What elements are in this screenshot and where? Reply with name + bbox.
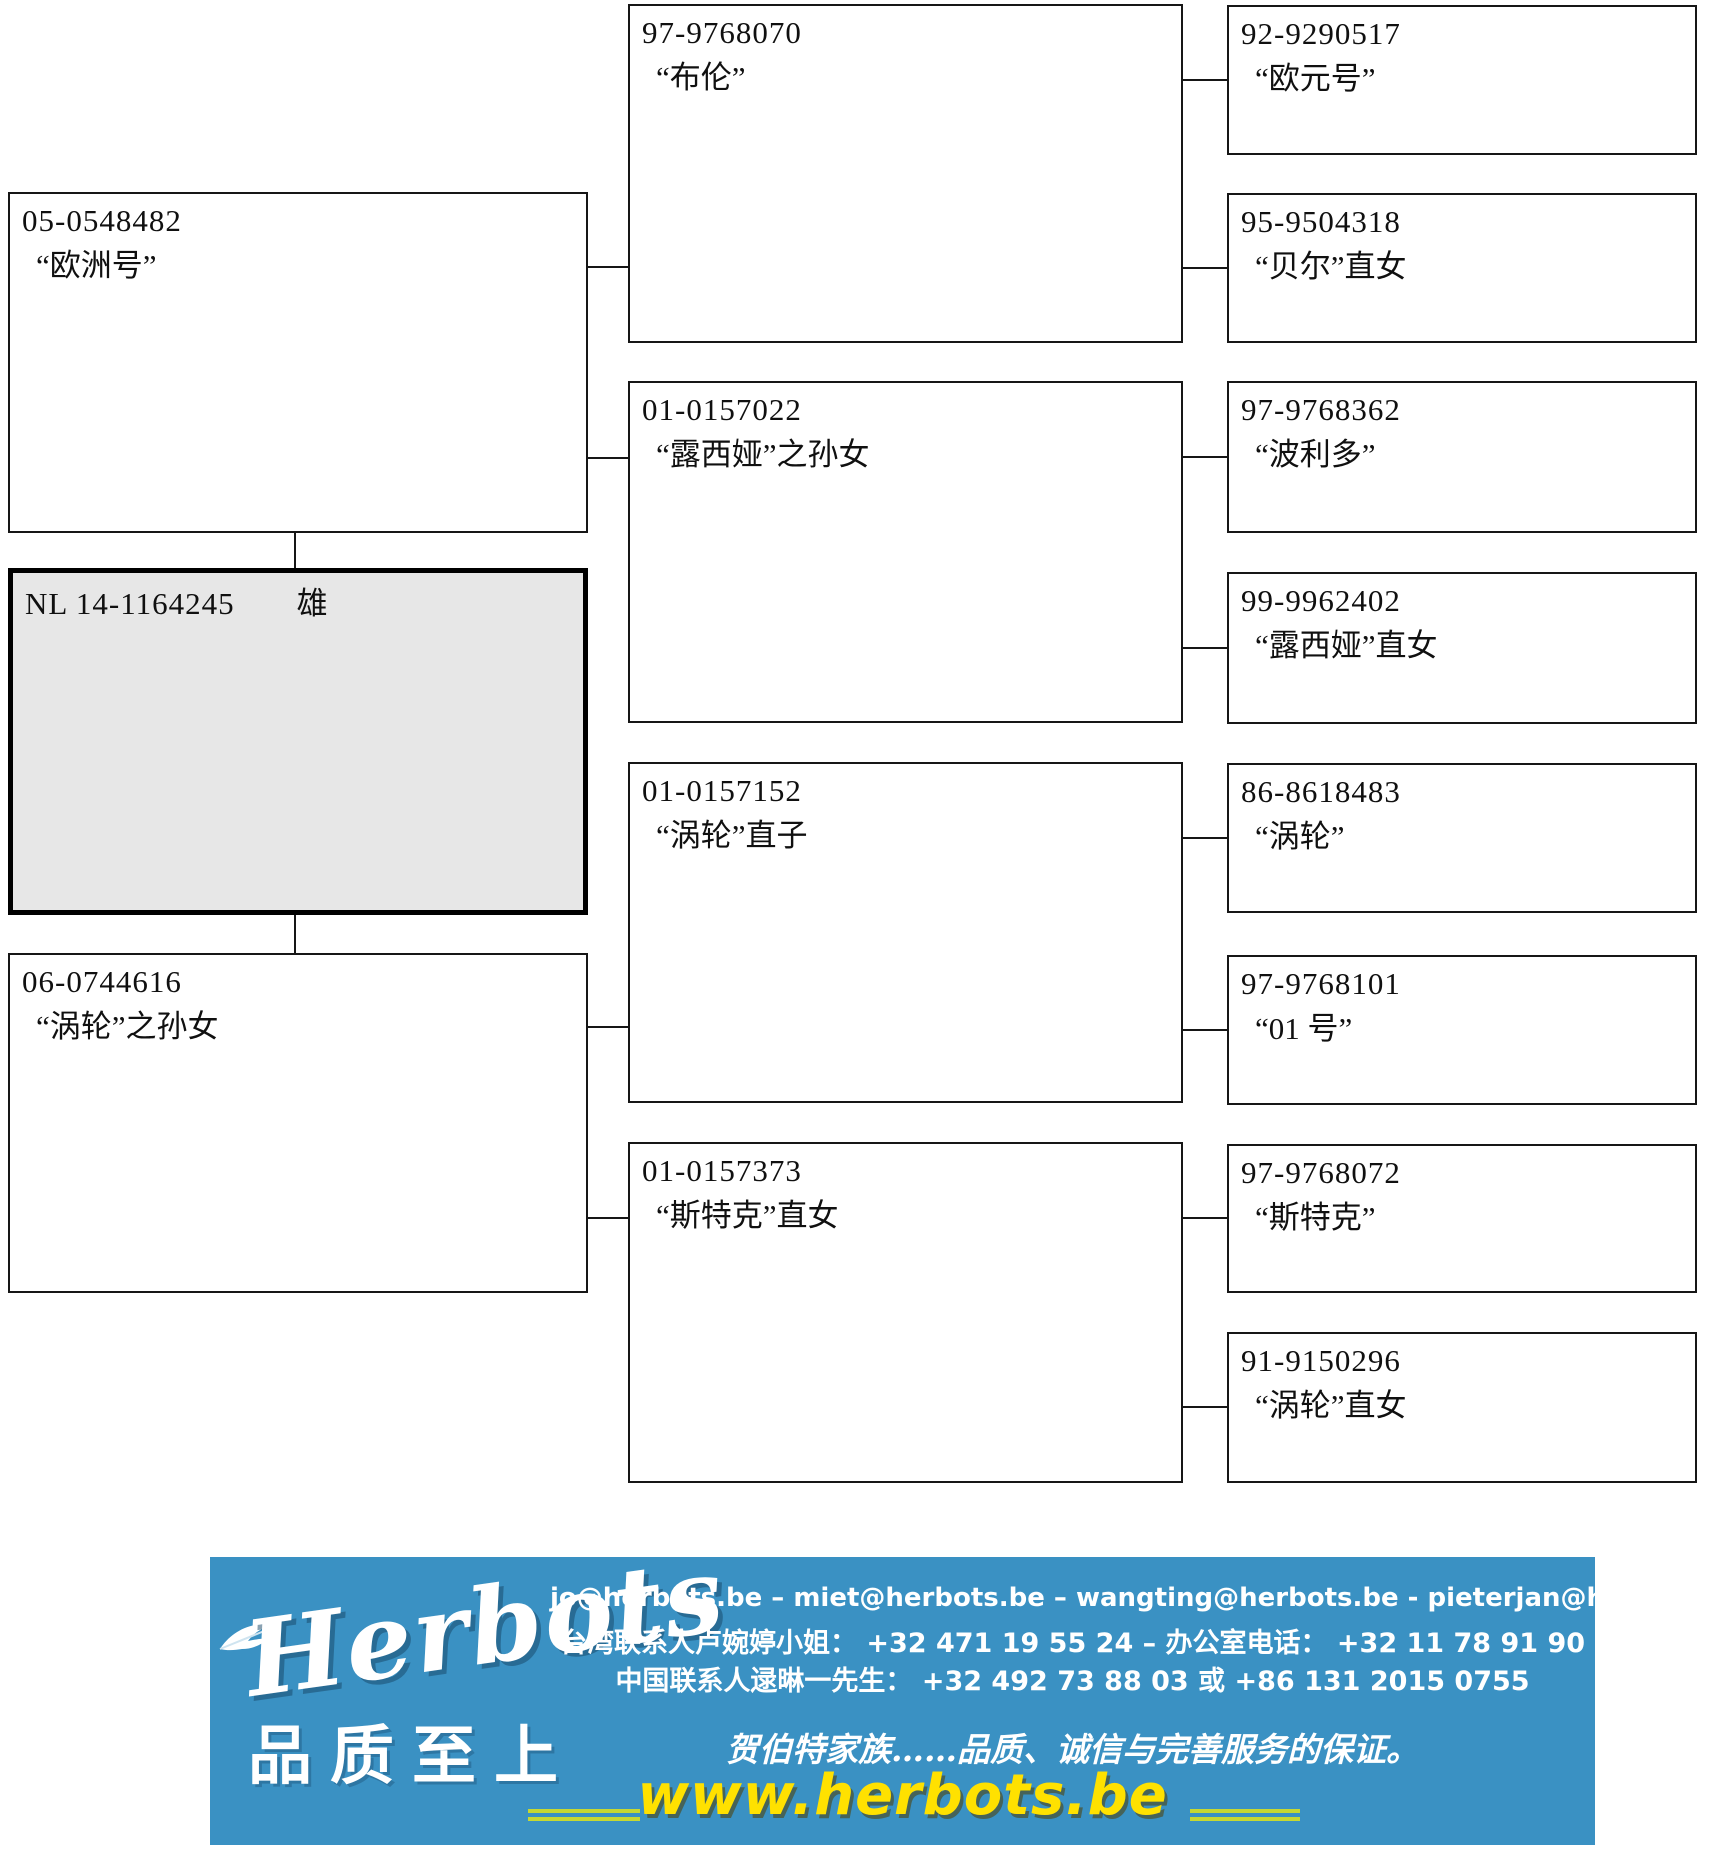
pedigree-box-ggparent-3: 97-9768362 “波利多” [1227,381,1697,533]
ring-number: 01-0157152 [642,769,1169,813]
pedigree-box-ggparent-6: 97-9768101 “01 号” [1227,955,1697,1105]
pedigree-box-ggparent-5: 86-8618483 “涡轮” [1227,763,1697,913]
pedigree-box-ggparent-7: 97-9768072 “斯特克” [1227,1144,1697,1293]
ring-number: 97-9768070 [642,11,1169,55]
ring-number: 86-8618483 [1241,770,1683,814]
ring-number: 01-0157373 [642,1149,1169,1193]
connector-line [1183,837,1227,839]
pigeon-name: “波利多” [1241,432,1683,478]
ring-number: 97-9768101 [1241,962,1683,1006]
pedigree-box-ggparent-8: 91-9150296 “涡轮”直女 [1227,1332,1697,1483]
connector-line [1183,456,1227,458]
connector-line [588,1217,628,1219]
connector-line [1183,647,1227,649]
connector-line [588,457,628,459]
connector-line [1183,1406,1227,1408]
contact-china: 中国联系人逯晽一先生： +32 492 73 88 03 或 +86 131 2… [550,1659,1595,1698]
pedigree-box-ggparent-1: 92-9290517 “欧元号” [1227,5,1697,155]
pedigree-box-ggparent-4: 99-9962402 “露西娅”直女 [1227,572,1697,724]
pigeon-name: “欧元号” [1241,56,1683,102]
pigeon-name: “布伦” [642,55,1169,101]
pigeon-name: “涡轮”之孙女 [22,1004,574,1050]
ring-number: 99-9962402 [1241,579,1683,623]
connector-line [1183,267,1227,269]
pedigree-box-grandparent-4: 01-0157373 “斯特克”直女 [628,1142,1183,1483]
connector-line [1183,79,1227,81]
pigeon-name: “露西娅”之孙女 [642,432,1169,478]
ring-number: 92-9290517 [1241,12,1683,56]
pigeon-name: “01 号” [1241,1006,1683,1052]
connector-line [588,266,628,268]
pigeon-name: “欧洲号” [22,243,574,289]
ring-number: 91-9150296 [1241,1339,1683,1383]
pigeon-name: “涡轮”直子 [642,813,1169,859]
pedigree-chart: 05-0548482 “欧洲号” NL 14-1164245雄 06-07446… [0,0,1720,1851]
sex-label: 雄 [297,578,328,623]
connector-line [1183,1217,1227,1219]
contact-taiwan: 台湾联系人卢婉婷小姐： +32 471 19 55 24 – 办公室电话： +3… [550,1621,1595,1660]
pedigree-box-grandparent-3: 01-0157152 “涡轮”直子 [628,762,1183,1103]
ring-number: 06-0744616 [22,960,574,1004]
connector-line [294,915,296,953]
pigeon-name: “贝尔”直女 [1241,244,1683,290]
ring-number: 97-9768362 [1241,388,1683,432]
connector-line [1183,1029,1227,1031]
pigeon-name: “斯特克”直女 [642,1193,1169,1239]
pigeon-name: “涡轮” [1241,814,1683,860]
decorative-double-line [1190,1809,1300,1821]
ring-number: 95-9504318 [1241,200,1683,244]
pigeon-name: “露西娅”直女 [1241,623,1683,669]
pigeon-name: “斯特克” [1241,1195,1683,1241]
connector-line [294,533,296,568]
pedigree-box-grandparent-2: 01-0157022 “露西娅”之孙女 [628,381,1183,723]
pedigree-box-subject: NL 14-1164245雄 [8,568,588,915]
connector-line [588,1026,628,1028]
ring-number: 97-9768072 [1241,1151,1683,1195]
pedigree-box-grandparent-1: 97-9768070 “布伦” [628,4,1183,343]
website-text: www.herbots.be [210,1763,1595,1828]
ring-number: 01-0157022 [642,388,1169,432]
ring-number: 05-0548482 [22,199,574,243]
email-addresses: jo@herbots.be – miet@herbots.be – wangti… [550,1583,1595,1613]
pedigree-box-ggparent-2: 95-9504318 “贝尔”直女 [1227,193,1697,343]
herbots-banner: Herbots 品质至上 jo@herbots.be – miet@herbot… [210,1557,1595,1845]
pigeon-name: “涡轮”直女 [1241,1383,1683,1429]
pedigree-box-dam: 06-0744616 “涡轮”之孙女 [8,953,588,1293]
ring-number: NL 14-1164245 [25,582,235,626]
pedigree-box-sire: 05-0548482 “欧洲号” [8,192,588,533]
